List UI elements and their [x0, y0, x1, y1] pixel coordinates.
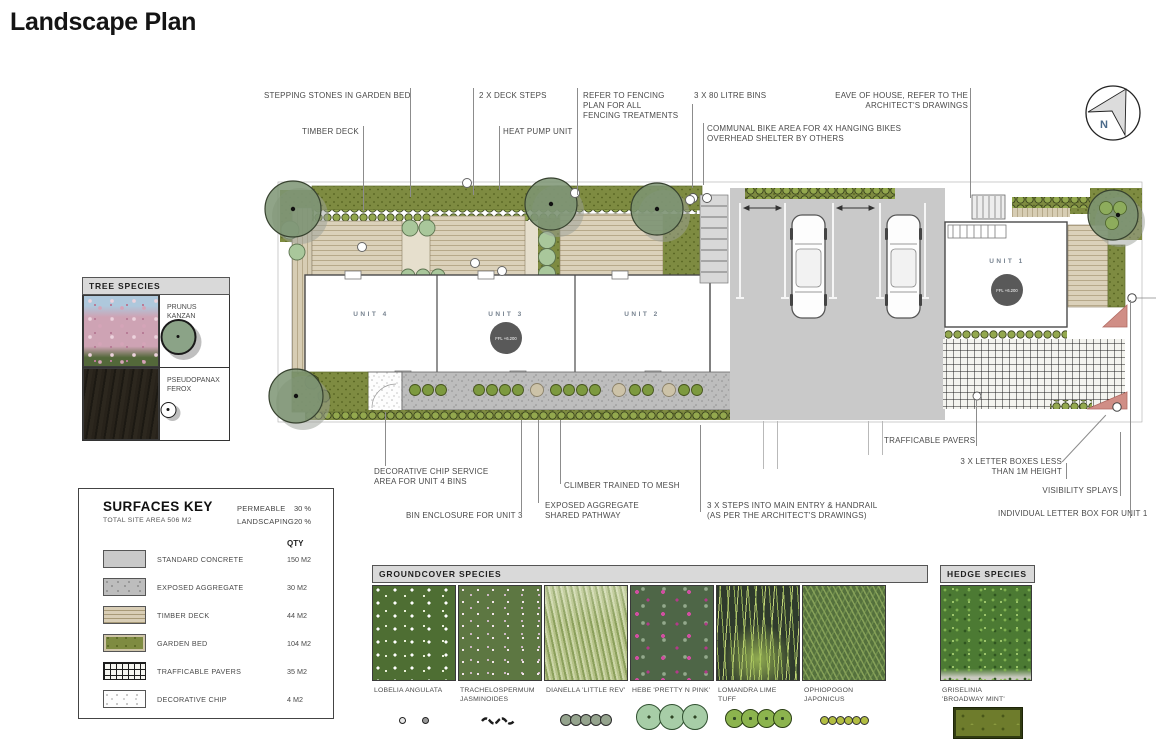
species-label: DIANELLA 'LITTLE REV'	[546, 687, 625, 696]
species-label: HEBE 'PRETTY N PINK'	[632, 687, 710, 696]
leader-line	[703, 123, 704, 185]
trafficable-pavers-swatch	[103, 662, 146, 680]
lobelia-angulata-photo	[372, 585, 456, 681]
surfaces-key-panel: SURFACES KEY TOTAL SITE AREA 506 M2 PERM…	[78, 488, 334, 719]
annotation-chip-service: DECORATIVE CHIP SERVICE AREA FOR UNIT 4 …	[374, 467, 488, 487]
lomandra-symbol	[716, 703, 800, 733]
tree-species-header: TREE SPECIES	[82, 277, 230, 295]
compass-north-label: N	[1100, 119, 1108, 131]
surface-qty: 4 M2	[287, 695, 303, 704]
path-edge-line	[882, 421, 883, 455]
decorative-chip-swatch	[103, 690, 146, 708]
trafficable-pavers-area	[943, 339, 1125, 409]
annotation-bike-area: COMMUNAL BIKE AREA FOR 4X HANGING BIKES …	[707, 124, 901, 144]
annotation-bins: 3 X 80 LITRE BINS	[694, 91, 766, 101]
site-plan-drawing: UNIT 4 UNIT 3 UNIT 2 FFL +6.200	[260, 168, 1162, 430]
leader-line	[363, 126, 364, 211]
annotation-visibility-splays: VISIBILITY SPLAYS	[1040, 486, 1118, 496]
dianella-symbol	[544, 706, 628, 734]
surface-qty: 35 M2	[287, 667, 307, 676]
tree-species-row: PSEUDOPANAX FEROX	[82, 368, 230, 441]
permeable-value: 30 %	[294, 504, 311, 513]
leader-line	[560, 420, 561, 484]
unit-3-label: UNIT 3	[488, 311, 524, 318]
leader-line	[499, 126, 500, 190]
front-hedge-row	[305, 410, 745, 420]
annotation-deck-steps: 2 X DECK STEPS	[479, 91, 547, 101]
landscape-plan-page: Landscape Plan N	[0, 0, 1162, 744]
landscaping-label: LANDSCAPING	[237, 517, 294, 526]
permeable-label: PERMEABLE	[237, 504, 286, 513]
bin-marker	[703, 194, 712, 203]
groundcover-species-header: GROUNDCOVER SPECIES	[372, 565, 928, 583]
surface-label: TRAFFICABLE PAVERS	[157, 667, 241, 676]
surfaces-key-subtitle: TOTAL SITE AREA 506 M2	[103, 517, 192, 524]
annotation-fencing: REFER TO FENCING PLAN FOR ALL FENCING TR…	[583, 91, 678, 121]
species-label: LOMANDRA LIME TUFF	[718, 687, 777, 705]
pseudopanax-ferox-photo	[83, 368, 159, 440]
qty-header: QTY	[287, 539, 303, 548]
ophiopogon-symbol	[802, 706, 886, 734]
species-label: TRACHELOSPERMUM JASMINOIDES	[460, 687, 535, 705]
griselinia-symbol	[954, 708, 1022, 738]
page-title: Landscape Plan	[10, 8, 196, 37]
annotation-aggregate-path: EXPOSED AGGREGATE SHARED PATHWAY	[545, 501, 639, 521]
trachelospermum-photo	[458, 585, 542, 681]
surfaces-key-title: SURFACES KEY	[103, 499, 213, 514]
leader-line	[1130, 300, 1131, 518]
leader-line	[692, 104, 693, 188]
surface-qty: 104 M2	[287, 639, 311, 648]
leader-line	[976, 400, 977, 446]
garden-bed-swatch	[103, 634, 146, 652]
leader-line	[970, 88, 971, 198]
surface-label: EXPOSED AGGREGATE	[157, 583, 243, 592]
annotation-bin-enclosure: BIN ENCLOSURE FOR UNIT 3	[406, 511, 523, 521]
hedge-species-header: HEDGE SPECIES	[940, 565, 1035, 583]
prunus-kanzan-symbol	[160, 319, 229, 355]
landscaping-value: 20 %	[294, 517, 311, 526]
species-label: LOBELIA ANGULATA	[374, 687, 442, 696]
leader-line	[538, 420, 539, 503]
leader-line	[521, 420, 522, 512]
species-label: GRISELINIA 'BROADWAY MINT'	[942, 687, 1005, 705]
annotation-letter-boxes: 3 X LETTER BOXES LESS THAN 1M HEIGHT	[900, 457, 1062, 477]
leader-line	[1066, 463, 1067, 479]
standard-concrete-swatch	[103, 550, 146, 568]
tree-species-name: PSEUDOPANAX FEROX	[167, 376, 220, 394]
leader-line	[1120, 432, 1121, 496]
surface-label: DECORATIVE CHIP	[157, 695, 227, 704]
parked-car	[790, 215, 827, 318]
leader-line	[473, 88, 474, 195]
annotation-eave: EAVE OF HOUSE, REFER TO THE ARCHITECT'S …	[828, 91, 968, 111]
annotation-steps-entry: 3 X STEPS INTO MAIN ENTRY & HANDRAIL (AS…	[707, 501, 877, 521]
annotation-climber: CLIMBER TRAINED TO MESH	[564, 481, 680, 491]
dianella-photo	[544, 585, 628, 681]
lomandra-photo	[716, 585, 800, 681]
surface-qty: 30 M2	[287, 583, 307, 592]
species-label: OPHIOPOGON JAPONICUS	[804, 687, 853, 705]
surface-label: GARDEN BED	[157, 639, 208, 648]
leader-line	[700, 425, 701, 512]
lobelia-symbol	[372, 706, 456, 734]
visibility-splay	[1103, 305, 1127, 327]
leader-line	[577, 88, 578, 195]
griselinia-photo	[940, 585, 1032, 681]
path-edge-line	[868, 421, 869, 455]
leader-line	[410, 88, 411, 197]
pseudopanax-ferox-symbol	[160, 402, 229, 418]
driveway-edge-line	[763, 421, 764, 469]
unit-2-label: UNIT 2	[624, 311, 660, 318]
surface-label: STANDARD CONCRETE	[157, 555, 243, 564]
annotation-stepping-stones: STEPPING STONES IN GARDEN BED	[264, 91, 411, 101]
ffl-unit1-text: FFL +6.200	[996, 288, 1018, 293]
unit-1-label: UNIT 1	[989, 258, 1025, 265]
ophiopogon-photo	[802, 585, 886, 681]
surface-qty: 44 M2	[287, 611, 307, 620]
letter-box-marker	[1113, 403, 1121, 411]
parked-car	[885, 215, 922, 318]
hebe-photo	[630, 585, 714, 681]
north-compass-icon: N	[1083, 82, 1143, 144]
annotation-letter-box-unit1: INDIVIDUAL LETTER BOX FOR UNIT 1	[998, 509, 1148, 519]
tree-species-row: PRUNUS KANZAN	[82, 295, 230, 368]
hebe-symbol	[630, 700, 714, 734]
unit-4-label: UNIT 4	[353, 311, 389, 318]
surface-label: TIMBER DECK	[157, 611, 209, 620]
driveway-edge-line	[777, 421, 778, 469]
ffl-unit3-text: FFL +6.200	[495, 336, 517, 341]
annotation-trafficable-pavers: TRAFFICABLE PAVERS	[884, 436, 975, 446]
timber-deck-swatch	[103, 606, 146, 624]
surface-qty: 150 M2	[287, 555, 311, 564]
decorative-chip-area	[368, 372, 402, 412]
trachelospermum-symbol	[458, 706, 542, 734]
prunus-kanzan-photo	[83, 295, 159, 367]
exposed-aggregate-swatch	[103, 578, 146, 596]
annotation-heat-pump: HEAT PUMP UNIT	[503, 127, 572, 137]
tree-species-panel: TREE SPECIES PRUNUS KANZAN PSEUDOPANAX F…	[82, 277, 230, 441]
leader-line	[385, 412, 386, 466]
annotation-timber-deck: TIMBER DECK	[302, 127, 359, 137]
